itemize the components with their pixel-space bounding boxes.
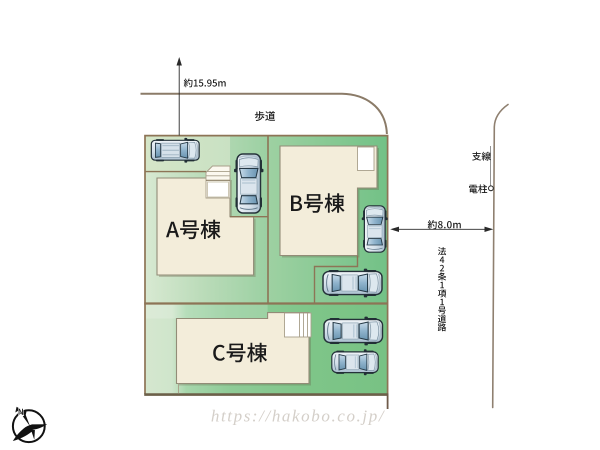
svg-text:https://hakobo.co.jp/: https://hakobo.co.jp/	[211, 407, 386, 426]
